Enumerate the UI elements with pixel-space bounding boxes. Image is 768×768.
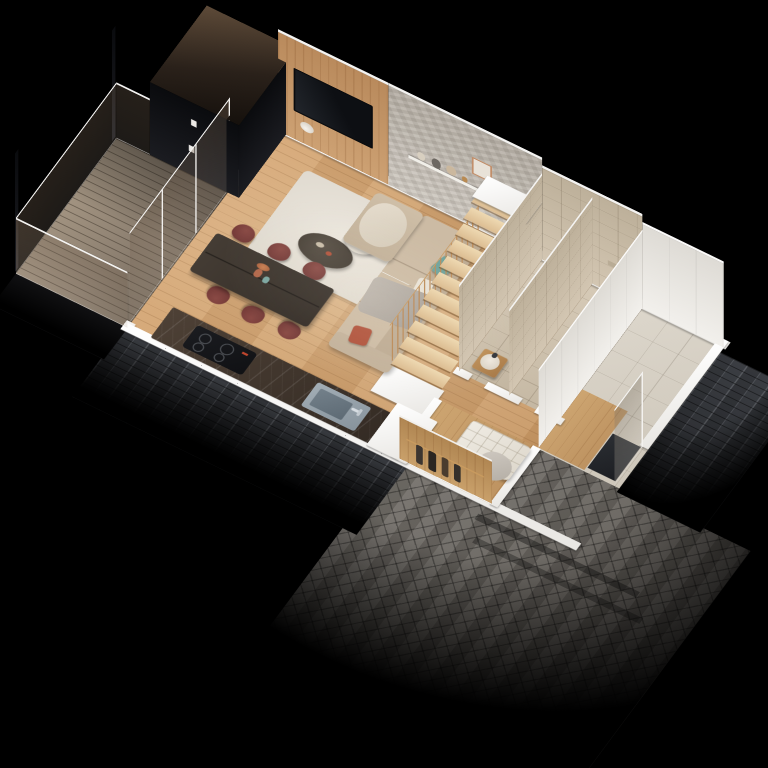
hanging-coat — [442, 456, 449, 478]
hanging-coat — [416, 444, 423, 466]
hanging-coat — [454, 463, 461, 483]
sofa-seat-seam — [391, 257, 428, 276]
glass-clamp — [191, 119, 197, 128]
table-decor — [325, 250, 333, 256]
table-decor — [315, 241, 326, 249]
render-canvas — [0, 0, 768, 768]
cooktop-indicator — [242, 352, 249, 357]
floorplan-scene — [0, 5, 768, 768]
hanging-coat — [428, 450, 436, 473]
speaker-decor — [300, 120, 313, 136]
tv-screen — [294, 68, 373, 149]
